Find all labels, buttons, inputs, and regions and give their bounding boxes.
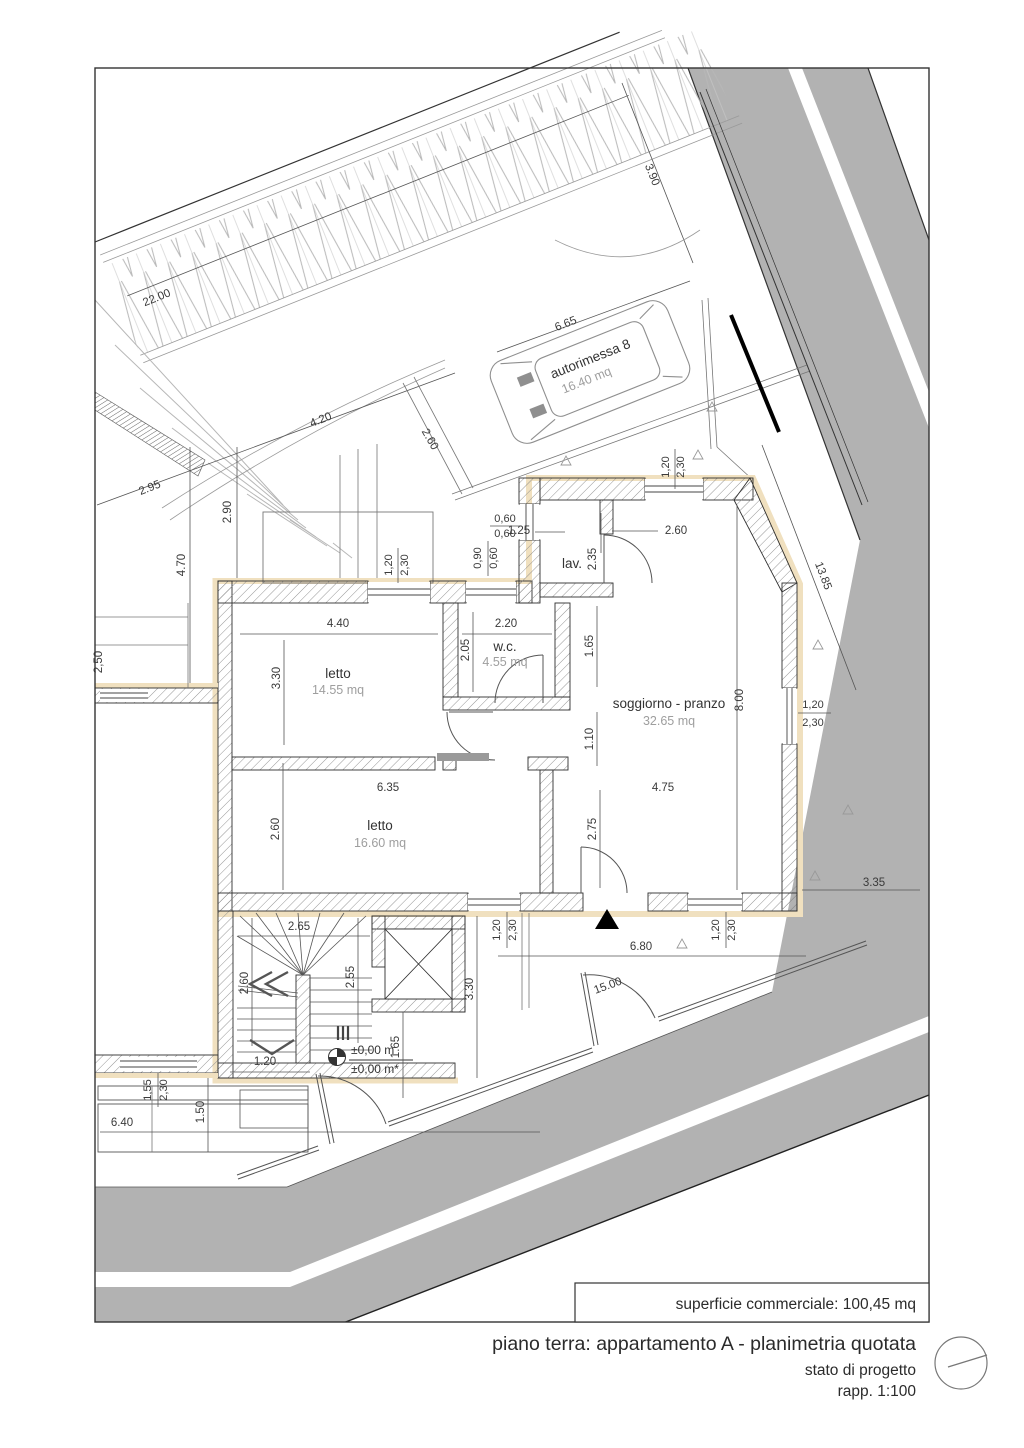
dim-label: 4.75 bbox=[652, 782, 674, 794]
dim-label: 2,30 bbox=[399, 554, 411, 575]
room-label-lav: lav. bbox=[562, 556, 582, 571]
dim-label: 0,90 bbox=[472, 547, 484, 568]
dim-label: 4.40 bbox=[327, 618, 349, 630]
dim-label: 2,30 bbox=[507, 919, 519, 940]
dim-label: 6.40 bbox=[111, 1117, 133, 1129]
north-indicator-icon bbox=[935, 1337, 987, 1389]
room-label-letto1: letto bbox=[325, 666, 351, 681]
dim-label: 4.70 bbox=[176, 554, 188, 576]
room-area-soggiorno: 32.65 mq bbox=[643, 714, 695, 728]
dim-label: 6.80 bbox=[630, 941, 652, 953]
dim-label: 0,60 bbox=[494, 528, 515, 540]
dim-label: 2.75 bbox=[587, 818, 599, 840]
dim-label: 0,60 bbox=[494, 513, 515, 525]
dim-label: 1.50 bbox=[195, 1101, 207, 1123]
sliding-door bbox=[437, 753, 489, 761]
retaining-wall-hatch bbox=[95, 392, 205, 476]
dim-label: 0,60 bbox=[488, 547, 500, 568]
level-value-2: ±0,00 m* bbox=[351, 1062, 399, 1076]
surface-note: superficie commerciale: 100,45 mq bbox=[676, 1296, 916, 1313]
dim-label: 3.35 bbox=[863, 877, 885, 889]
dim-label: 1,20 bbox=[491, 919, 503, 940]
dim-label: 2.60 bbox=[270, 818, 282, 840]
dim-label: 1,55 bbox=[142, 1079, 154, 1100]
windows bbox=[368, 479, 796, 910]
dim-label: 1,20 bbox=[383, 554, 395, 575]
sheet-title: piano terra: appartamento A - planimetri… bbox=[492, 1333, 916, 1355]
room-area-letto2: 16.60 mq bbox=[354, 836, 406, 850]
dim-label: 15.00 bbox=[592, 976, 623, 997]
dim-label: 1.65 bbox=[390, 1036, 402, 1058]
dim-label: 1.10 bbox=[584, 728, 596, 750]
dim-label: 3.30 bbox=[271, 667, 283, 689]
dim-label: 2.65 bbox=[288, 921, 310, 933]
dim-label: 2,30 bbox=[802, 717, 823, 729]
dim-label: 2.60 bbox=[419, 427, 441, 452]
dim-label: 1,20 bbox=[710, 919, 722, 940]
dim-label: 1.20 bbox=[254, 1056, 276, 1068]
dim-label: 4.20 bbox=[308, 410, 333, 429]
room-label-wc: w.c. bbox=[492, 639, 516, 654]
room-label-soggiorno: soggiorno - pranzo bbox=[613, 696, 726, 711]
stair-center-wall bbox=[296, 975, 310, 1063]
stair-direction-arrows bbox=[250, 972, 294, 1054]
dim-label: 2.20 bbox=[495, 618, 517, 630]
dim-label: 1.65 bbox=[584, 635, 596, 657]
room-area-wc: 4.55 mq bbox=[482, 655, 527, 669]
dim-label: 2,30 bbox=[726, 919, 738, 940]
dim-label: 2.60 bbox=[665, 525, 687, 537]
dim-label: 13.85 bbox=[812, 560, 834, 591]
floor-plan-sheet: ±0,00 m ±0,00 m* bbox=[0, 0, 1024, 1448]
dim-label: 2,30 bbox=[675, 456, 687, 477]
sheet-subtitle: stato di progetto bbox=[805, 1362, 916, 1379]
level-value: ±0,00 m bbox=[351, 1043, 394, 1057]
dim-label: 2.90 bbox=[222, 501, 234, 523]
ramp bbox=[95, 2, 742, 558]
dim-label: 1,20 bbox=[660, 456, 672, 477]
floor-plan-drawing: ±0,00 m ±0,00 m* bbox=[0, 0, 1024, 1448]
boundary-wall bbox=[731, 315, 779, 432]
dim-label: 1,20 bbox=[802, 699, 823, 711]
dim-label: 2.95 bbox=[137, 478, 162, 497]
sheet-scale: rapp. 1:100 bbox=[838, 1383, 917, 1400]
dim-label: 3.90 bbox=[642, 162, 662, 187]
room-label-letto2: letto bbox=[367, 818, 393, 833]
dim-label: 8.00 bbox=[734, 689, 746, 711]
dim-label: 3.30 bbox=[464, 978, 476, 1000]
dim-label: 2.35 bbox=[587, 548, 599, 570]
dim-label: 2.55 bbox=[345, 966, 357, 988]
interior-walls bbox=[232, 500, 613, 893]
dim-label: 2.60 bbox=[239, 972, 251, 994]
dim-label: 6.35 bbox=[377, 782, 399, 794]
dim-label: 2.05 bbox=[460, 639, 472, 661]
exterior-walls bbox=[218, 478, 797, 911]
room-area-letto1: 14.55 mq bbox=[312, 683, 364, 697]
dim-label: 2,30 bbox=[158, 1079, 170, 1100]
